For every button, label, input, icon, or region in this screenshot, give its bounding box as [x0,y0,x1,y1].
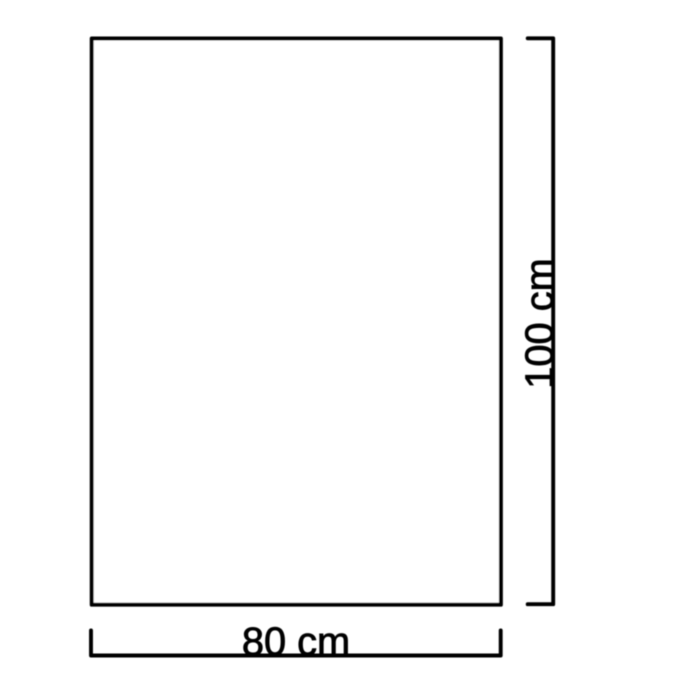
svg-text:100 cm: 100 cm [518,258,562,389]
svg-text:80 cm: 80 cm [242,620,350,664]
